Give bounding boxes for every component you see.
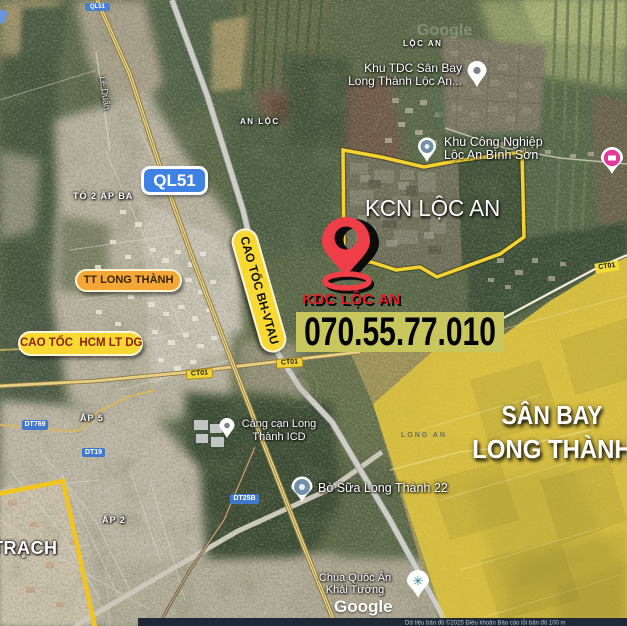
- svg-text:✳: ✳: [413, 574, 424, 589]
- svg-text:Dữ liệu bản đồ ©2025 Điều kh: Dữ liệu bản đồ ©2025 Điều khoản Báo cáo …: [405, 620, 566, 626]
- svg-text:Google: Google: [417, 22, 472, 39]
